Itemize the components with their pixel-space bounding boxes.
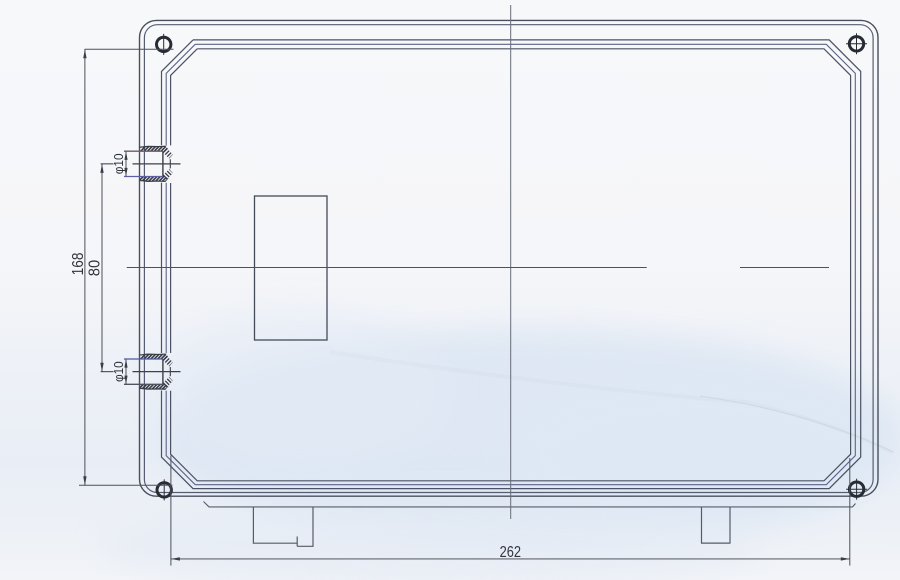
svg-text:168: 168 (70, 252, 87, 275)
svg-text:262: 262 (500, 544, 521, 561)
svg-text:80: 80 (87, 260, 104, 276)
